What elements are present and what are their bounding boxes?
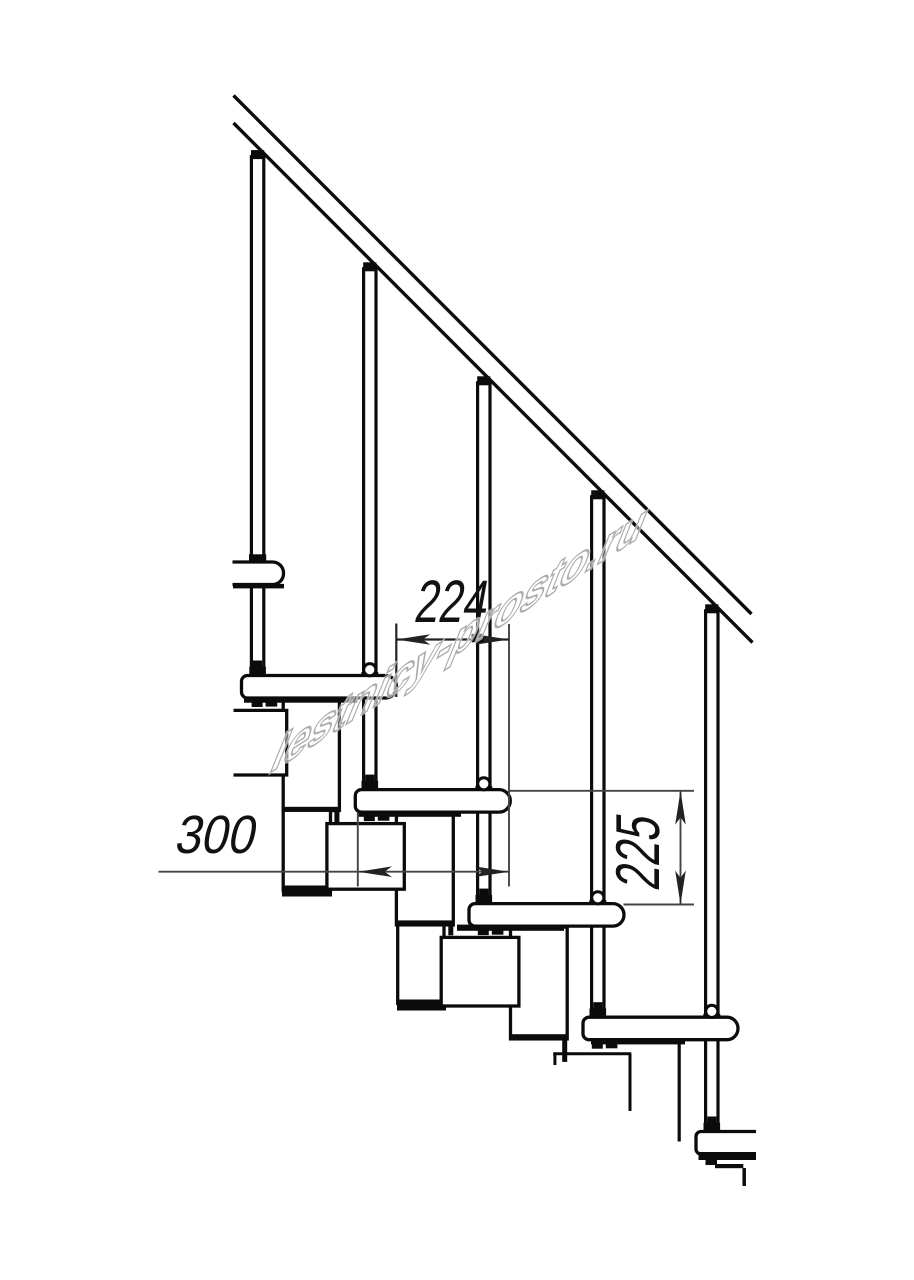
svg-text:225: 225	[603, 808, 673, 894]
svg-text:300: 300	[171, 804, 264, 865]
